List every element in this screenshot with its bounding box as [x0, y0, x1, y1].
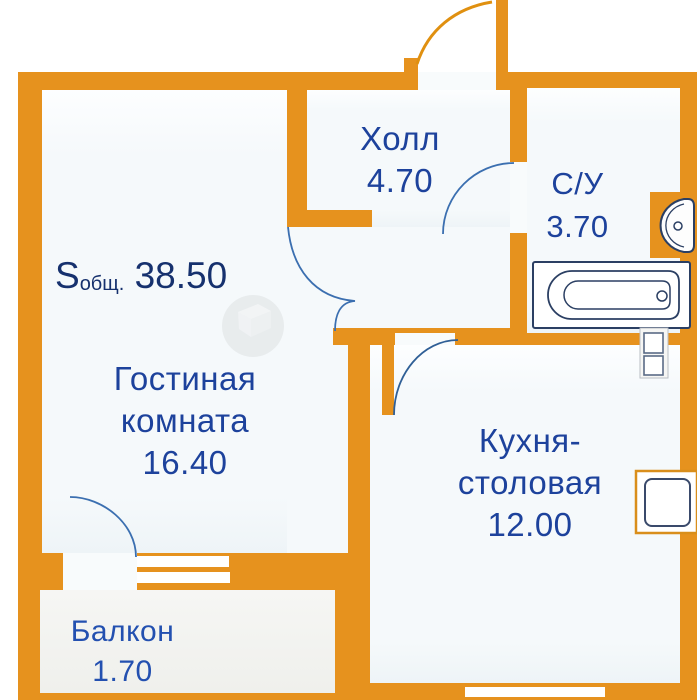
kitchen-window: [465, 687, 605, 697]
kitchen-door-opening: [395, 333, 455, 345]
corridor-wall: [333, 328, 395, 345]
room-name: Гостиная: [114, 360, 257, 397]
room-label-hall: Холл 4.70: [325, 118, 475, 202]
room-name: Балкон: [71, 615, 175, 648]
total-area-label: Sобщ. 38.50: [55, 255, 227, 297]
balcony-window: [137, 556, 229, 567]
room-name: Холл: [360, 120, 440, 157]
entrance-door-opening: [418, 72, 496, 90]
room-area: 12.00: [420, 504, 640, 546]
room-name: столовая: [458, 464, 602, 501]
room-label-balcony: Балкон 1.70: [45, 612, 200, 692]
total-area-symbol: S: [55, 255, 80, 296]
room-label-living-room: Гостиная комната 16.40: [60, 358, 310, 484]
room-area: 4.70: [325, 160, 475, 202]
entrance-side-wall: [496, 0, 508, 72]
room-area: 1.70: [45, 652, 200, 692]
room-area: 3.70: [515, 205, 640, 248]
total-area-value: 38.50: [135, 255, 228, 296]
room-name: комната: [121, 402, 249, 439]
kitchen-door-post: [382, 345, 394, 415]
room-name: С/У: [551, 166, 603, 201]
hall-corridor-floor: [287, 227, 510, 328]
hall-partition-wall: [287, 210, 372, 227]
room-label-bathroom: С/У 3.70: [515, 162, 640, 248]
entrance-door-post: [404, 58, 418, 90]
entrance-door-arc: [417, 2, 492, 64]
balcony-window: [137, 572, 230, 583]
floor-plan: Sобщ. 38.50 Холл 4.70 С/У 3.70 Гостиная …: [0, 0, 697, 700]
room-label-kitchen: Кухня- столовая 12.00: [420, 420, 640, 546]
total-area-subscript: общ.: [80, 273, 125, 295]
balcony-door-opening: [63, 553, 137, 590]
room-name: Кухня-: [479, 422, 581, 459]
room-area: 16.40: [60, 442, 310, 484]
